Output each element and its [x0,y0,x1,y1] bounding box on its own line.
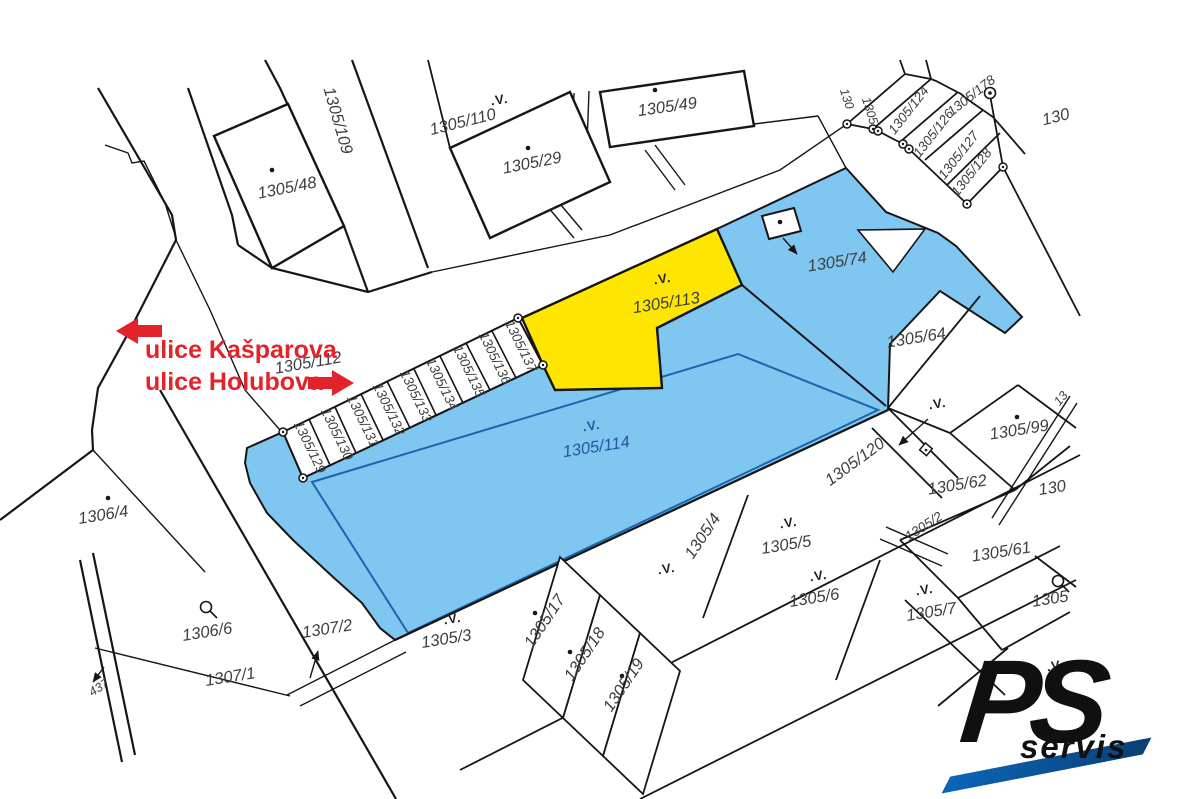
landuse-icon: .V. [652,270,672,288]
landuse-icon: .V. [656,560,676,578]
parcel-label-1305-4: 1305/4 [681,510,724,562]
parcel-label-1306-4: 1306/4 [77,502,130,528]
landuse-icon: .V. [778,514,798,532]
parcel-label-1305-99: 1305/99 [988,417,1050,444]
parcel-label-1305-62: 1305/62 [926,472,988,499]
street-label-kasparova: ulice Kašparova [145,336,338,364]
parcel-label-1305-109: 1305/109 [320,85,356,156]
landuse-icon: .V. [808,567,828,585]
label-fragment-5: 130 [1037,477,1068,499]
label-fragment-3: 130 [1040,105,1072,129]
label-fragment-4: 13 [1051,389,1071,409]
parcel-label-1305-6: 1305/6 [788,585,841,611]
landuse-icon: .V. [927,395,947,413]
square-marker [920,443,933,456]
landuse-icon: .V. [442,610,462,628]
parcel-label-1305-124: 1305/124 [885,83,931,137]
street-annotations: ulice Kašparova ulice Holubova [116,318,354,396]
parcel-label-1307-2: 1307/2 [301,616,354,642]
parcel-label-1305-7: 1305/7 [905,599,958,625]
parcel-label-1306-6: 1306/6 [181,619,234,645]
label-fragment-1: 130 [837,87,857,111]
parcel-label-1305-61: 1305/61 [970,539,1032,566]
parcel-label-1305-3: 1305/3 [420,626,473,652]
logo-servis-text: servis [1020,728,1127,766]
landuse-icon: .V. [914,581,934,599]
landuse-icon: .V. [581,417,601,435]
street-label-holubova: ulice Holubova [145,368,324,396]
ps-servis-logo: PS servis [942,652,1198,798]
parcel-label-1305-120: 1305/120 [822,434,889,489]
parcel-label-1305-5: 1305/5 [760,532,813,558]
label-fragment-6: 1305 [1031,587,1071,611]
